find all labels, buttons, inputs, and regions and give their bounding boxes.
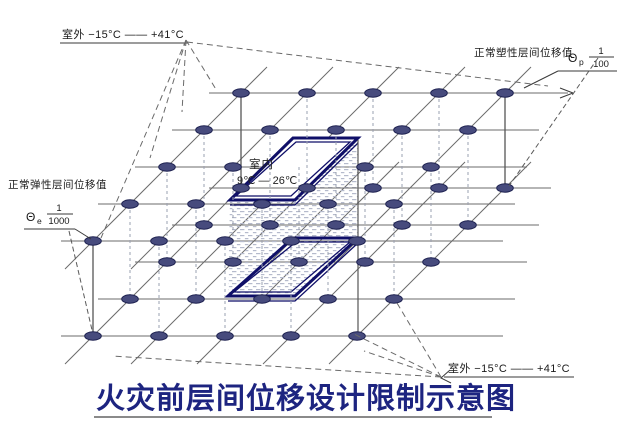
joint-node (386, 200, 403, 208)
theta-p-numerator: 1 (598, 46, 603, 57)
joint-node (122, 200, 139, 208)
joint-node (217, 332, 234, 340)
joint-node (431, 184, 448, 192)
elastic-drift-callout: 正常弹性层间位移值 Θ e 1 1000 (8, 178, 107, 330)
joint-node (320, 295, 337, 303)
joint-node (151, 237, 168, 245)
sheet-title: 火灾前层间位移设计限制示意图 (96, 381, 516, 415)
joint-node (196, 126, 213, 134)
joint-node (254, 295, 271, 303)
theta-e-denominator: 1000 (48, 216, 69, 227)
theta-p-leader-dashed (509, 58, 598, 186)
joint-node (431, 89, 448, 97)
joint-node (283, 237, 300, 245)
joint-node (122, 295, 139, 303)
joint-node (394, 126, 411, 134)
drawing-sheet: 室外 −15°C —— +41°C 正常塑性层间位移值 Θ p 1 100 正常… (0, 0, 620, 421)
joint-node (254, 200, 271, 208)
joint-node (328, 126, 345, 134)
joint-node (497, 89, 514, 97)
indoor-range-label: 9℃ — 26℃ (237, 175, 297, 187)
joint-node (196, 221, 213, 229)
joint-node (497, 184, 514, 192)
joint-node (394, 221, 411, 229)
joint-node (423, 258, 440, 266)
theta-p-denominator: 100 (593, 59, 609, 70)
joint-node (188, 295, 205, 303)
outdoor-bottom-label: 室外 −15°C —— +41°C (448, 361, 570, 375)
theta-e-subscript: e (37, 216, 42, 226)
joint-node (299, 89, 316, 97)
joint-node (349, 237, 366, 245)
joint-node (460, 126, 477, 134)
outdoor-bottom-callout: 室外 −15°C —— +41°C (112, 303, 574, 383)
joint-node (423, 163, 440, 171)
joint-node (85, 237, 102, 245)
displacement-diagram: 室外 −15°C —— +41°C 正常塑性层间位移值 Θ p 1 100 正常… (0, 0, 620, 421)
joint-node (386, 295, 403, 303)
joint-node (233, 89, 250, 97)
indoor-label: 室内 (249, 157, 274, 171)
joint-node (357, 163, 374, 171)
joint-node (460, 221, 477, 229)
joint-node (159, 163, 176, 171)
theta-e-symbol: Θ (26, 210, 35, 224)
plastic-drift-callout: 正常塑性层间位移值 Θ p 1 100 (474, 46, 617, 186)
joint-node (225, 163, 242, 171)
joint-node (225, 258, 242, 266)
theta-e-leader (75, 229, 91, 239)
joint-node (159, 258, 176, 266)
joint-node (151, 332, 168, 340)
plastic-drift-label: 正常塑性层间位移值 (474, 46, 573, 59)
joint-node (328, 221, 345, 229)
elastic-drift-label: 正常弹性层间位移值 (8, 178, 107, 191)
joint-node (365, 184, 382, 192)
joint-node (85, 332, 102, 340)
joint-node (283, 332, 300, 340)
joint-node (357, 258, 374, 266)
joint-node (188, 200, 205, 208)
theta-p-leader (524, 71, 558, 88)
joint-node (291, 258, 308, 266)
theta-e-numerator: 1 (56, 203, 61, 214)
outdoor-top-label: 室外 −15°C —— +41°C (62, 27, 184, 41)
title-block: 火灾前层间位移设计限制示意图 (94, 381, 516, 417)
joint-node (299, 184, 316, 192)
joint-node (320, 200, 337, 208)
joint-node (262, 221, 279, 229)
joint-node (262, 126, 279, 134)
joint-node (365, 89, 382, 97)
joint-node (217, 237, 234, 245)
theta-p-subscript: p (579, 57, 584, 67)
theta-p-symbol: Θ (568, 51, 577, 65)
